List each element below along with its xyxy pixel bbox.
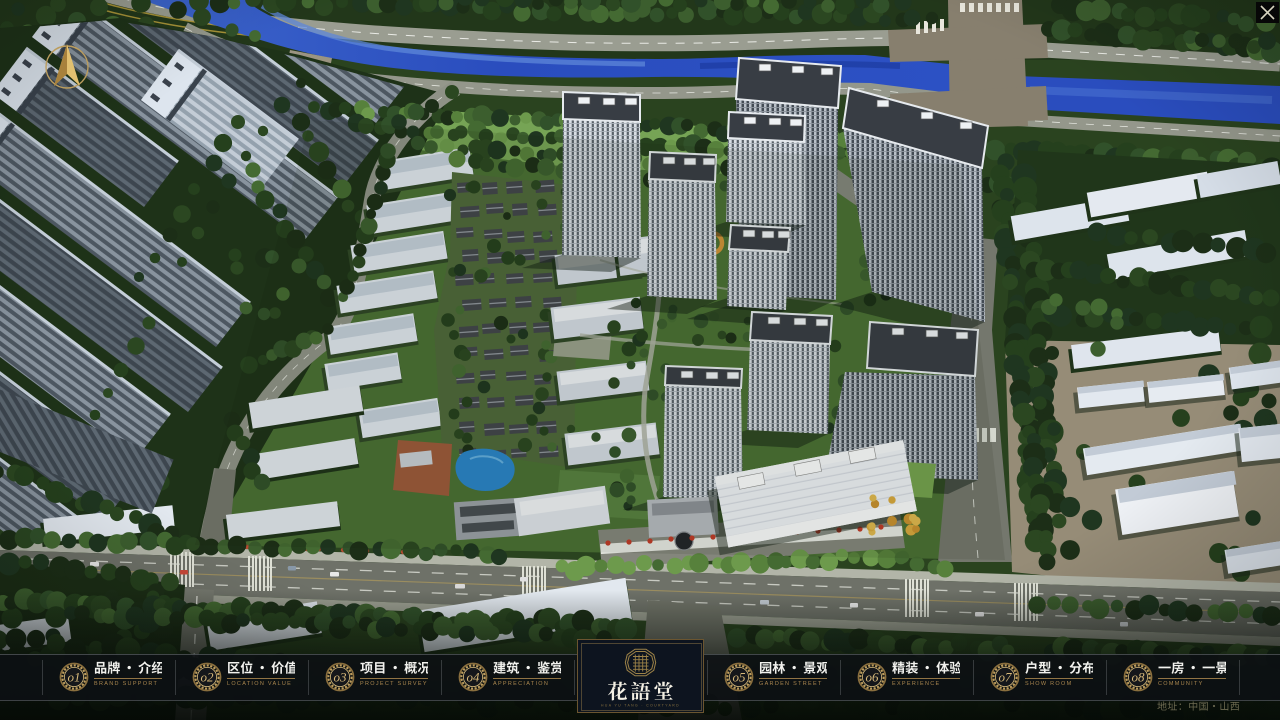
- svg-text:o5: o5: [733, 670, 747, 685]
- svg-text:o4: o4: [467, 670, 481, 685]
- svg-text:HUA YU TANG · COURTYARD: HUA YU TANG · COURTYARD: [601, 704, 680, 708]
- svg-text:o8: o8: [1132, 670, 1146, 685]
- svg-text:o3: o3: [334, 670, 348, 685]
- svg-text:o6: o6: [866, 670, 880, 685]
- svg-text:o7: o7: [999, 670, 1013, 685]
- svg-text:o2: o2: [201, 670, 215, 685]
- svg-text:o1: o1: [68, 670, 81, 685]
